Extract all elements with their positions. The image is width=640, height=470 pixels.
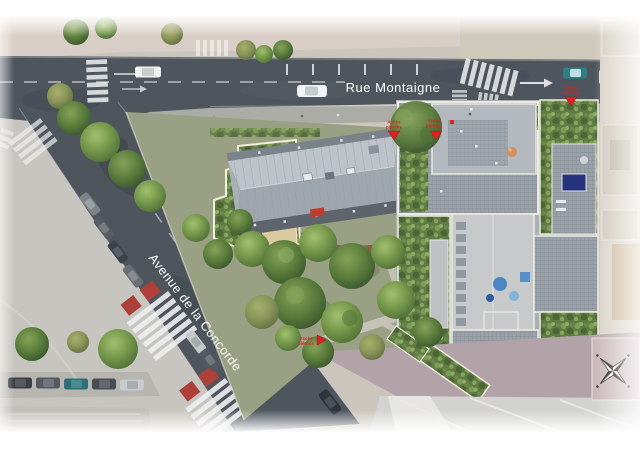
street-label-rue-montaigne: Rue Montaigne <box>346 80 441 95</box>
svg-text:piétons: piétons <box>298 341 314 346</box>
top-fade <box>0 16 640 36</box>
svg-text:parking: parking <box>563 90 579 95</box>
south-east-terrace <box>534 236 598 312</box>
svg-text:piétons: piétons <box>426 123 442 128</box>
rooftop-pool <box>562 174 586 191</box>
svg-text:piétons: piétons <box>386 125 402 130</box>
left-fade <box>0 16 14 432</box>
right-fade <box>594 16 640 432</box>
top-margin <box>0 0 640 16</box>
marker-dot-icon <box>450 120 454 124</box>
aerial-site-plan-svg: Rue Montaigne Avenue de la Concorde Accè… <box>0 0 640 470</box>
bottom-margin <box>0 432 640 470</box>
north-hedge <box>210 128 320 137</box>
play-area-blue <box>493 277 507 291</box>
bottom-fade <box>0 410 640 432</box>
aerial-site-plan: Rue Montaigne Avenue de la Concorde Accè… <box>0 0 640 470</box>
